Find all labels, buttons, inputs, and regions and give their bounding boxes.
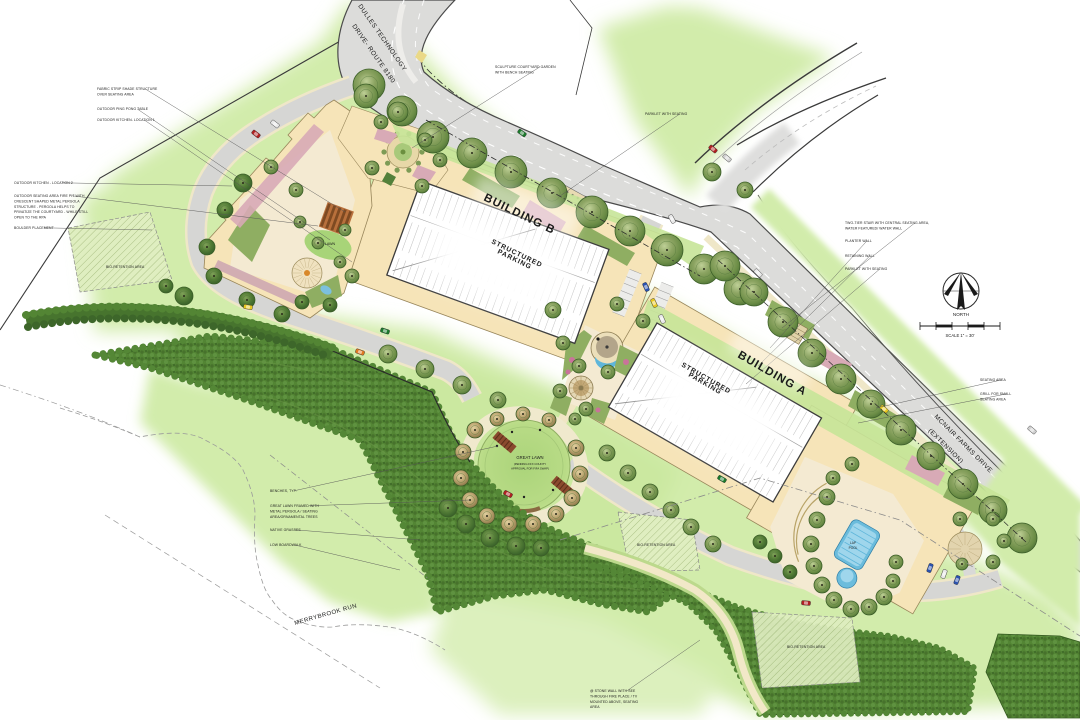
svg-text:RETAINING WALL: RETAINING WALL xyxy=(845,254,875,258)
svg-text:WITH BENCH SEATING: WITH BENCH SEATING xyxy=(495,70,534,74)
svg-text:LOW BOARDWALK: LOW BOARDWALK xyxy=(270,543,302,547)
svg-text:BENCHES, TYP.: BENCHES, TYP. xyxy=(270,489,297,493)
svg-text:PLANTER WALL: PLANTER WALL xyxy=(845,239,872,243)
svg-text:CRESCENT SHAPED METAL PERGOLA: CRESCENT SHAPED METAL PERGOLA xyxy=(14,199,80,203)
svg-text:WATER FEATURED/ WATER WALL: WATER FEATURED/ WATER WALL xyxy=(845,226,902,230)
svg-text:GREAT LAWN: GREAT LAWN xyxy=(516,455,543,460)
svg-text:STRUCTURE - PERGOLA HELPS TO: STRUCTURE - PERGOLA HELPS TO xyxy=(14,205,75,209)
svg-text:OVER SEATING AREA: OVER SEATING AREA xyxy=(97,92,135,96)
svg-text:FABRIC STRIP SHADE STRUCTURE: FABRIC STRIP SHADE STRUCTURE xyxy=(97,87,158,91)
svg-text:MOUNTED ABOVE, SEATING: MOUNTED ABOVE, SEATING xyxy=(590,700,639,704)
svg-text:BIO-RETENTION AREA: BIO-RETENTION AREA xyxy=(637,543,676,547)
svg-text:OUTDOOR PING PONG TABLE: OUTDOOR PING PONG TABLE xyxy=(97,107,149,111)
svg-text:METAL PERGOLA / SEATING: METAL PERGOLA / SEATING xyxy=(270,509,318,513)
svg-text:NORTH: NORTH xyxy=(953,312,969,317)
svg-text:SCALE 1" = 30': SCALE 1" = 30' xyxy=(946,333,975,338)
svg-text:BIO-RETENTION AREA: BIO-RETENTION AREA xyxy=(787,645,826,649)
svg-text:LAP: LAP xyxy=(850,541,856,545)
svg-text:OPEN TO THE RPA: OPEN TO THE RPA xyxy=(14,216,47,220)
svg-text:SEATING AREA: SEATING AREA xyxy=(980,378,1006,382)
svg-text:POOL: POOL xyxy=(849,546,858,550)
svg-text:APPROVAL FOR FIFA SWAP): APPROVAL FOR FIFA SWAP) xyxy=(511,467,549,471)
svg-text:AREA: AREA xyxy=(590,705,600,709)
svg-text:(PENDING FFX COUNTY: (PENDING FFX COUNTY xyxy=(514,462,546,466)
svg-text:SEATING AREA: SEATING AREA xyxy=(980,397,1006,401)
svg-text:SCULPTURE COURTYARD GARDEN: SCULPTURE COURTYARD GARDEN xyxy=(495,65,556,69)
svg-text:BIO-RETENTION AREA: BIO-RETENTION AREA xyxy=(106,265,145,269)
svg-text:GREAT LAWN FRAMED WITH: GREAT LAWN FRAMED WITH xyxy=(270,504,319,508)
svg-text:AREA/ORNAMENTAL TREES: AREA/ORNAMENTAL TREES xyxy=(270,515,318,519)
svg-text:THROUGH FIRE PLACE / TV: THROUGH FIRE PLACE / TV xyxy=(590,694,638,698)
svg-text:PARKLET WITH SEATING: PARKLET WITH SEATING xyxy=(645,112,688,116)
svg-text:PARKLET WITH SEATING: PARKLET WITH SEATING xyxy=(845,267,888,271)
svg-text:TWO-TIER STAIR WITH CENTRAL SE: TWO-TIER STAIR WITH CENTRAL SEATING AREA… xyxy=(845,221,929,225)
svg-text:LAWN: LAWN xyxy=(325,242,336,246)
svg-text:PRIVATIZE THE COURTYARD - WHIL: PRIVATIZE THE COURTYARD - WHILE STILL xyxy=(14,210,88,214)
